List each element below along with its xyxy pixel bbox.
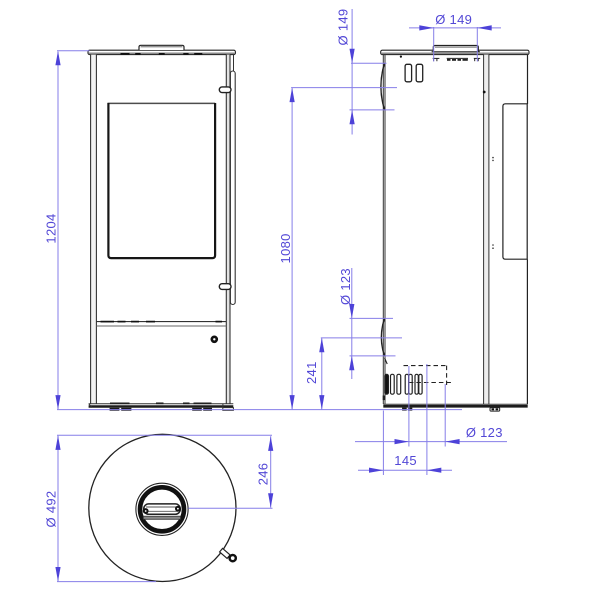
svg-text:Ø 149: Ø 149 [435, 12, 472, 27]
svg-text:1080: 1080 [278, 233, 293, 263]
svg-text:Ø 123: Ø 123 [338, 268, 353, 305]
svg-text:1204: 1204 [44, 213, 59, 243]
svg-text:145: 145 [394, 453, 417, 468]
svg-text:Ø 492: Ø 492 [44, 491, 59, 528]
svg-text:241: 241 [304, 361, 319, 384]
svg-text:246: 246 [255, 463, 270, 486]
svg-text:Ø 123: Ø 123 [466, 425, 503, 440]
svg-text:Ø 149: Ø 149 [335, 9, 350, 46]
